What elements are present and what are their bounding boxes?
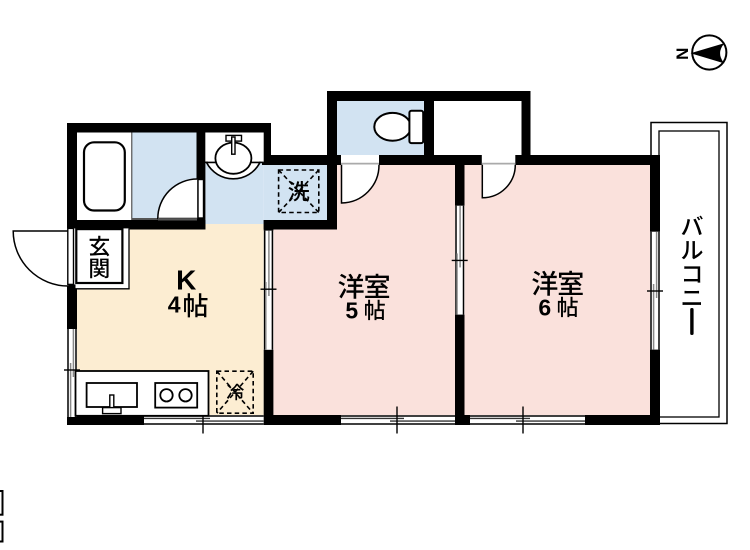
svg-text:6: 6 xyxy=(538,294,551,320)
svg-text:N: N xyxy=(673,48,692,60)
svg-text:4: 4 xyxy=(168,291,181,317)
svg-text:5: 5 xyxy=(345,297,358,323)
